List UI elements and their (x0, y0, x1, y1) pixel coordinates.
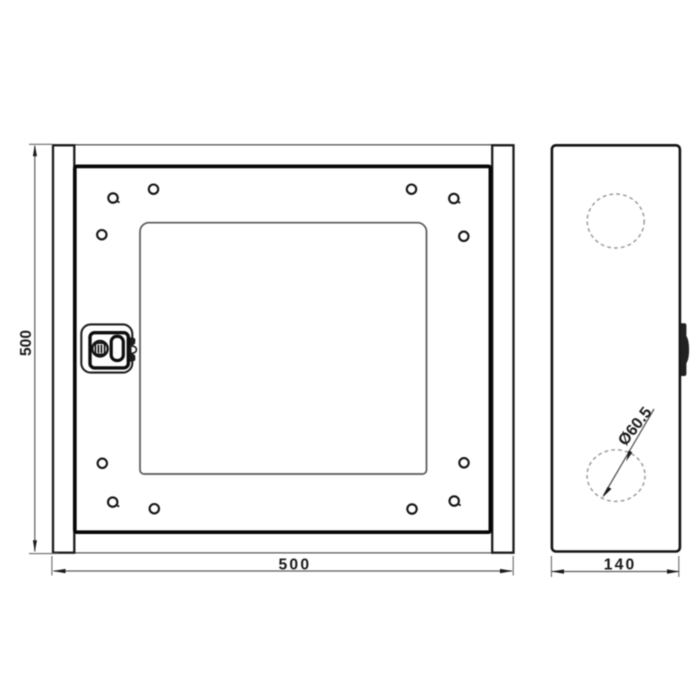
svg-text:500: 500 (18, 330, 35, 356)
svg-text:500: 500 (279, 556, 312, 573)
svg-text:140: 140 (604, 556, 637, 573)
